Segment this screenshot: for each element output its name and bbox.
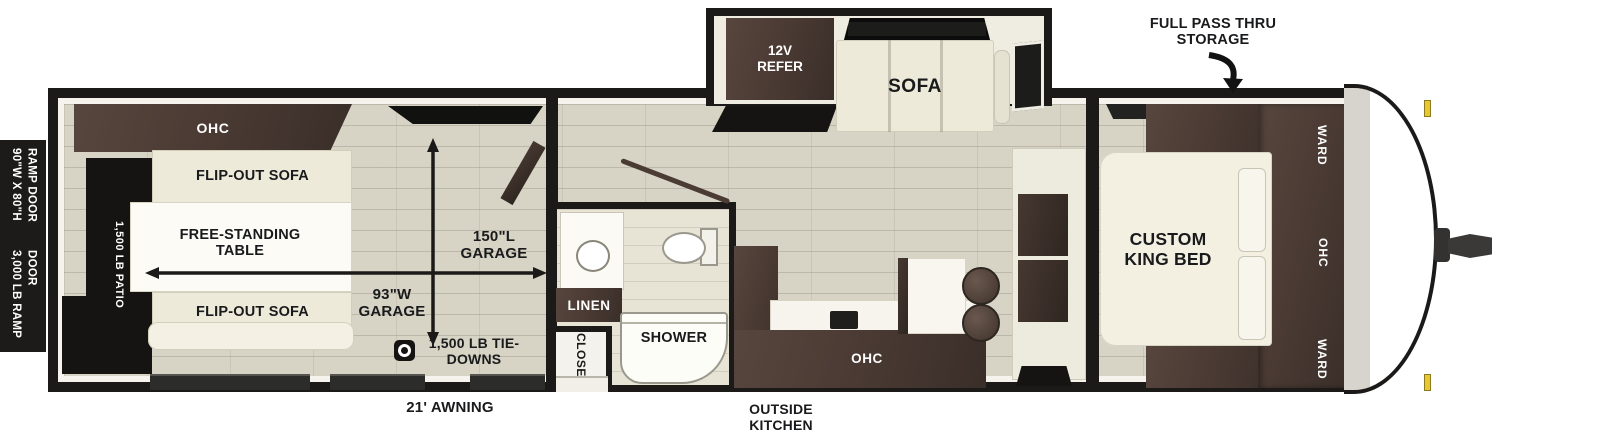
clearance-marker-bottom bbox=[1424, 374, 1431, 391]
linen-label: LINEN bbox=[568, 298, 611, 313]
linen-cabinet: LINEN bbox=[556, 288, 622, 322]
flip-out-sofa-top-label: FLIP-OUT SOFA bbox=[155, 168, 350, 184]
patio-label: 1,500 LB PATIO bbox=[113, 221, 125, 308]
ramp-door-size-label: 90"W X 80"H RAMP DOOR bbox=[7, 148, 38, 246]
awning-label: 21' AWNING bbox=[380, 400, 520, 417]
garage-ohc-cabinet: OHC bbox=[74, 104, 352, 152]
clearance-marker-top bbox=[1424, 100, 1431, 117]
kitchen-peninsula-end bbox=[898, 258, 908, 334]
ward-bottom-label: WARD bbox=[1315, 324, 1329, 394]
entry-step bbox=[1016, 366, 1072, 386]
ramp-door-capacity-label: 3,000 LB RAMP DOOR bbox=[7, 250, 38, 346]
kitchen-ohc-label: OHC bbox=[834, 351, 900, 366]
bar-stool-2 bbox=[962, 304, 1000, 342]
tie-downs-icon bbox=[394, 340, 415, 361]
shower-label: SHOWER bbox=[625, 330, 723, 346]
garage-bottom-window-3 bbox=[470, 374, 545, 390]
garage-bottom-window-1 bbox=[150, 374, 310, 390]
refer-label: 12V REFER bbox=[748, 43, 812, 75]
garage-top-window bbox=[388, 106, 543, 124]
bedroom-ohc-label: OHC bbox=[1316, 228, 1330, 278]
media-cabinet-lower bbox=[1018, 260, 1068, 322]
tie-downs-icon-ring bbox=[398, 344, 411, 357]
free-standing-table-label: FREE-STANDING TABLE bbox=[175, 227, 305, 259]
slideout-right-window bbox=[1012, 40, 1044, 111]
bar-stool-1 bbox=[962, 267, 1000, 305]
floorplan-canvas: 90"W X 80"H RAMP DOOR 3,000 LB RAMP DOOR… bbox=[0, 0, 1600, 437]
shower-glass-line bbox=[622, 322, 726, 324]
garage-bottom-window-2 bbox=[330, 374, 425, 390]
sofa-label: SOFA bbox=[836, 76, 994, 97]
sofa-armrest bbox=[994, 50, 1010, 124]
ward-top-label: WARD bbox=[1315, 110, 1329, 180]
ramp-door-panel: 90"W X 80"H RAMP DOOR 3,000 LB RAMP DOOR bbox=[0, 140, 46, 352]
flip-out-sofa-bottom-label: FLIP-OUT SOFA bbox=[155, 304, 350, 320]
entry-door-gap bbox=[556, 376, 608, 392]
outside-kitchen-label: OUTSIDE KITCHEN bbox=[736, 402, 826, 433]
garage-ohc-label: OHC bbox=[197, 120, 230, 136]
hitch-base bbox=[1434, 228, 1450, 262]
flip-out-sofa-bottom-cushion bbox=[148, 322, 354, 350]
pass-thru-arrow bbox=[1203, 50, 1251, 94]
slideout-top-window bbox=[844, 18, 990, 40]
front-cap bbox=[1344, 84, 1438, 394]
bed-pillow-1 bbox=[1238, 168, 1266, 252]
hitch-coupler bbox=[1448, 234, 1492, 258]
custom-king-bed-label: CUSTOM KING BED bbox=[1113, 230, 1223, 269]
cooktop bbox=[830, 311, 858, 329]
bathroom-sink bbox=[576, 240, 610, 272]
toilet-bowl bbox=[662, 232, 706, 264]
garage-width-label: 93"W GARAGE bbox=[352, 287, 432, 321]
garage-length-arrow bbox=[144, 265, 548, 281]
bedroom-wall bbox=[1086, 98, 1099, 392]
tie-downs-label: 1,500 LB TIE-DOWNS bbox=[424, 336, 524, 367]
media-cabinet-upper bbox=[1018, 194, 1068, 256]
bed-pillow-2 bbox=[1238, 256, 1266, 340]
garage-length-label: 150"L GARAGE bbox=[454, 229, 534, 263]
refer: 12V REFER bbox=[726, 18, 834, 100]
kitchen-peninsula bbox=[898, 258, 966, 334]
sofa: SOFA bbox=[836, 40, 994, 132]
full-pass-thru-label: FULL PASS THRU STORAGE bbox=[1138, 16, 1288, 48]
